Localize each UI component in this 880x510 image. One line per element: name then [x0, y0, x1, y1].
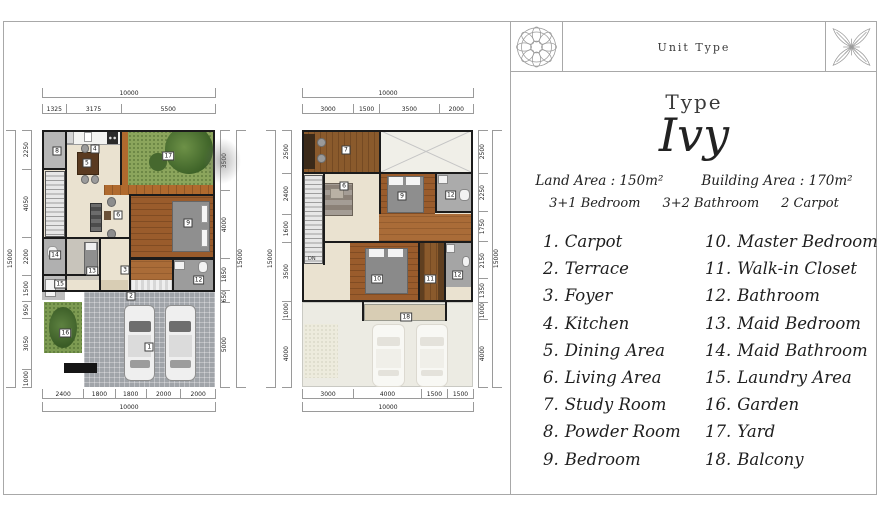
desk	[303, 134, 315, 169]
ground-dim-bottom-total: 10000	[42, 402, 216, 412]
rosette-left-icon	[511, 22, 563, 72]
room-marker: 13	[86, 267, 98, 276]
room-legend: 1.Carpot 2.Terrace 3.Foyer 4.Kitchen 5.D…	[543, 228, 873, 473]
car-rear-glass	[170, 360, 190, 367]
spec-line: 3+1 Bedroom 3+2 Bathroom 2 Carpot	[511, 196, 877, 211]
land-area: Land Area : 150m²	[535, 173, 663, 189]
legend-item: 8.Powder Room	[543, 418, 705, 445]
legend-item: 15.Laundry Area	[705, 364, 873, 391]
wall	[42, 237, 129, 239]
kitchen-sink	[84, 132, 93, 142]
sofa	[90, 203, 101, 231]
void-area	[379, 130, 473, 173]
type-name: Ivy	[511, 108, 877, 163]
legend-item: 14.Maid Bathroom	[705, 337, 873, 364]
car-ghost	[372, 324, 404, 387]
legend-column-left: 1.Carpot 2.Terrace 3.Foyer 4.Kitchen 5.D…	[543, 228, 705, 473]
brochure-sheet: Unit Type Type Ivy Land Area : 150m² Bui…	[0, 0, 880, 510]
room-marker: 16	[60, 329, 72, 338]
car-rear-glass	[421, 370, 442, 376]
toilet	[198, 261, 208, 273]
ground-dim-bottom: 2400 1800 1800 2000 2000	[42, 389, 216, 399]
legend-item: 7.Study Room	[543, 391, 705, 418]
wall	[435, 173, 437, 212]
room-marker: 11	[424, 275, 436, 284]
room-marker: 17	[162, 151, 174, 160]
room-marker: 9	[398, 192, 407, 201]
wall	[323, 173, 325, 266]
ground-dim-top: 1325 3175 5500	[42, 104, 216, 114]
stairs-down-label: DN	[308, 256, 316, 262]
room-marker: 9	[184, 218, 193, 227]
wall	[129, 194, 216, 196]
legend-column-right: 10.Master Bedroom 11.Walk-in Closet 12.B…	[705, 228, 873, 473]
legend-item: 11.Walk-in Closet	[705, 255, 873, 282]
car-windshield	[377, 337, 400, 346]
upper-dim-right: 2500 2250 1750 2150 1350 1000 4000	[478, 130, 488, 388]
legend-item: 18.Balcony	[705, 446, 873, 473]
stove-icon	[107, 132, 118, 144]
spec-carport: 2 Carpot	[781, 196, 839, 211]
rosette-right-icon	[825, 22, 877, 72]
spec-bathroom: 3+2 Bathroom	[662, 196, 759, 211]
car-windshield	[169, 321, 191, 332]
toilet	[459, 189, 469, 201]
room-marker: 18	[400, 313, 412, 322]
room-marker: 15	[54, 280, 66, 289]
wall	[435, 211, 473, 213]
pillow	[86, 243, 96, 249]
bathroom-sink	[174, 261, 184, 270]
wall	[418, 241, 420, 301]
room-marker: 7	[341, 146, 350, 155]
legend-item: 6.Living Area	[543, 364, 705, 391]
building-area: Building Area : 170m²	[701, 173, 852, 189]
car-ghost	[416, 324, 448, 387]
pillow	[388, 249, 403, 257]
ground-dim-top-total: 10000	[42, 88, 216, 98]
wall	[120, 130, 122, 185]
legend-item: 3.Foyer	[543, 282, 705, 309]
room-marker: 2	[127, 291, 136, 300]
pillow	[201, 229, 208, 247]
pillow	[201, 205, 208, 223]
room-marker: 10	[371, 275, 383, 284]
car-roof	[376, 349, 400, 367]
ground-dim-left-total: 15000	[6, 130, 16, 388]
area-line: Land Area : 150m² Building Area : 170m²	[511, 173, 877, 189]
wall	[65, 130, 67, 292]
ground-dim-left: 2250 4050 2200 1500 950 3050 1000	[22, 130, 32, 388]
car-windshield	[420, 337, 443, 346]
car-roof	[420, 349, 444, 367]
legend-item: 5.Dining Area	[543, 337, 705, 364]
bathroom-sink	[446, 244, 455, 253]
room-marker: 12	[193, 276, 205, 285]
room-marker: 6	[114, 210, 123, 219]
wall	[445, 302, 447, 321]
legend-item: 2.Terrace	[543, 255, 705, 282]
room-marker: 14	[49, 250, 61, 259]
upper-dim-bottom-total: 10000	[302, 402, 474, 412]
upper-dim-top-total: 10000	[302, 88, 474, 98]
stairs	[304, 175, 323, 264]
wall	[362, 302, 364, 321]
car-rear-glass	[378, 370, 399, 376]
bathroom-sink	[438, 175, 448, 184]
coffee-table	[104, 211, 111, 220]
upper-dim-left-total: 15000	[266, 130, 276, 388]
upper-dim-bottom: 3000 4000 1500 1500	[302, 389, 474, 399]
car	[165, 305, 196, 381]
hall-wood-floor	[129, 259, 172, 281]
garden-ghost	[304, 324, 338, 378]
entry-step	[64, 363, 97, 373]
car-windshield	[129, 321, 151, 332]
wall	[302, 172, 473, 174]
wall	[99, 238, 101, 292]
spec-bedroom: 3+1 Bedroom	[549, 196, 640, 211]
legend-item: 9.Bedroom	[543, 446, 705, 473]
scan-smudge	[203, 138, 241, 184]
upper-dim-top: 3000 1500 3500 2000	[302, 104, 474, 114]
room-terrace	[99, 280, 128, 292]
upper-dim-right-total: 15000	[492, 130, 502, 388]
pillow	[406, 177, 420, 185]
legend-item: 4.Kitchen	[543, 310, 705, 337]
upper-floor-plan: DN	[302, 130, 473, 387]
desk-chair	[317, 138, 326, 147]
ground-floor-plan: 8 4 5 17 6 9 14 15 13 3 2 12 16 1	[42, 130, 215, 387]
upper-dim-left: 2500 2400 1600 3500 1000 4000	[282, 130, 292, 388]
wall	[42, 168, 65, 170]
legend-item: 16.Garden	[705, 391, 873, 418]
room-marker: 3	[121, 266, 130, 275]
legend-item: 1.Carpot	[543, 228, 705, 255]
pillow	[369, 249, 384, 257]
pillow	[389, 177, 403, 185]
room-marker: 12	[452, 270, 464, 279]
legend-item: 12.Bathroom	[705, 282, 873, 309]
wall	[172, 259, 174, 291]
legend-item: 10.Master Bedroom	[705, 228, 873, 255]
stairs	[45, 171, 65, 238]
armchair	[107, 197, 117, 207]
room-marker: 5	[82, 159, 91, 168]
car-rear-glass	[130, 360, 150, 367]
room-marker: 12	[445, 191, 457, 200]
wall	[129, 194, 131, 292]
wall	[323, 241, 473, 243]
room-marker: 1	[145, 343, 154, 352]
room-marker: 8	[53, 147, 62, 156]
car-roof	[169, 335, 192, 357]
legend-item: 13.Maid Bedroom	[705, 310, 873, 337]
wall	[379, 130, 381, 173]
unit-type-title: Unit Type	[563, 22, 825, 72]
wall	[379, 173, 381, 214]
legend-item: 17.Yard	[705, 418, 873, 445]
room-marker: 6	[340, 182, 349, 191]
room-marker: 4	[90, 145, 99, 154]
wall	[444, 241, 446, 301]
unit-type-header: Unit Type	[511, 22, 877, 72]
hall-wood-floor	[379, 214, 473, 242]
